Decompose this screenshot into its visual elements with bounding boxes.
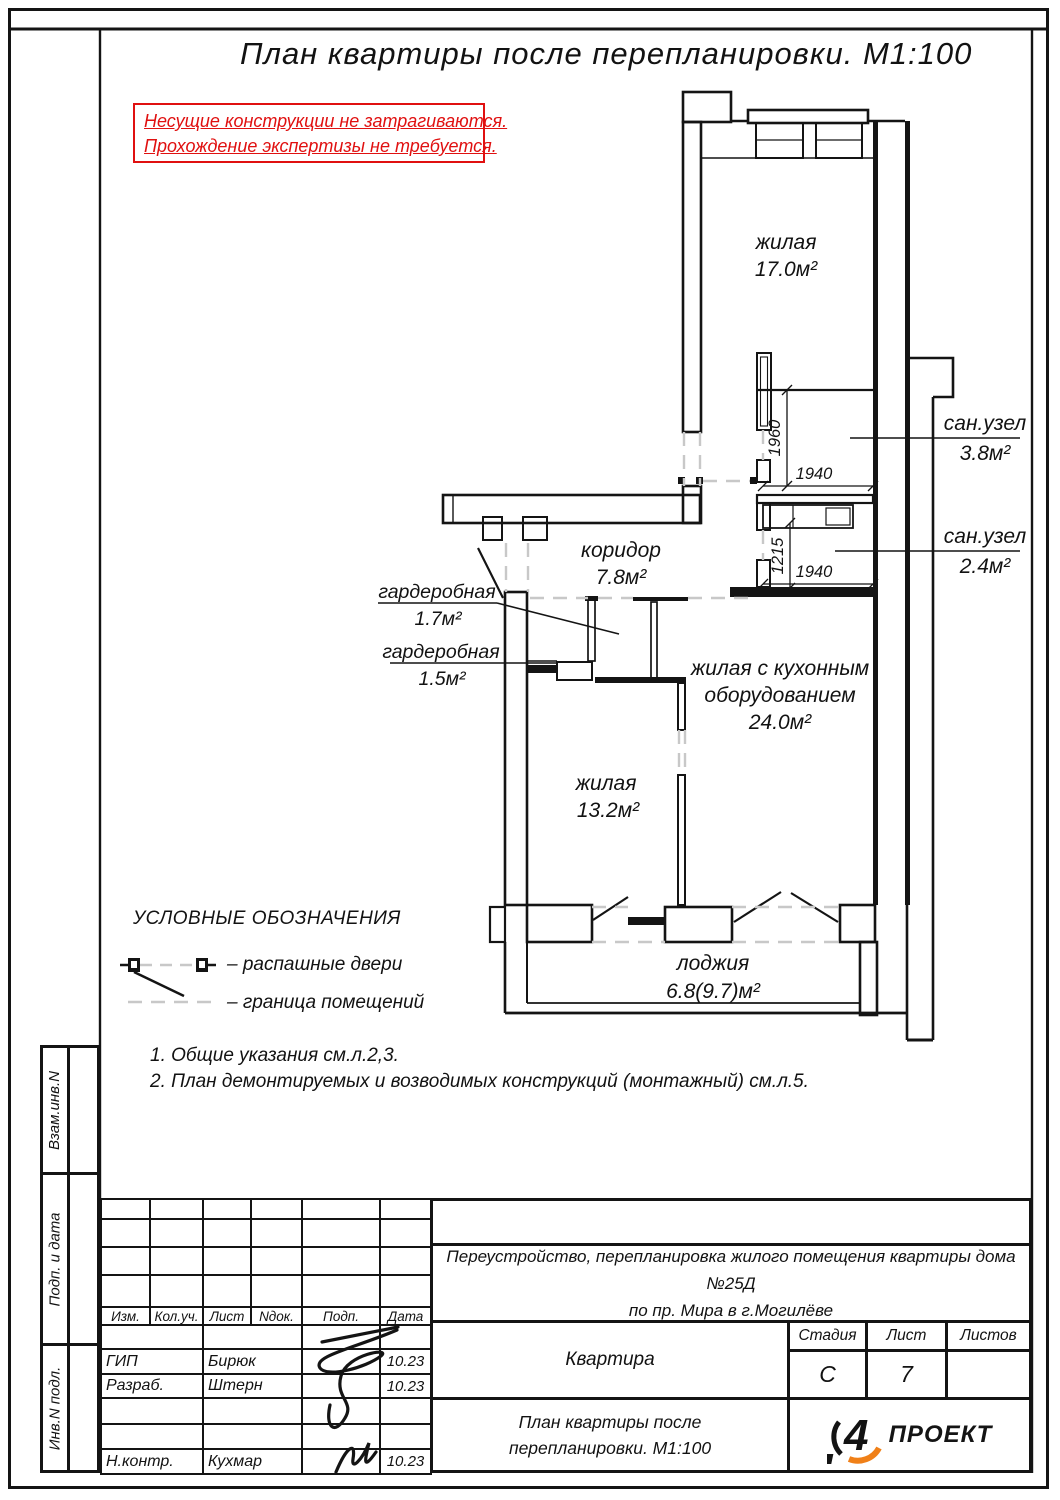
col-podp: Подп. [302,1307,380,1325]
room-gard17-name: гардеробная [378,581,496,603]
revision-table: Изм. Кол.уч. Лист Nдок. Подп. Дата ГИП Б… [100,1198,432,1475]
legend-item-swing-doors: – распашные двери [227,954,402,976]
doc-title-line-1: План квартиры после [509,1409,711,1435]
col-data: Дата [380,1307,431,1325]
col-ndok: Nдок. [251,1307,302,1325]
room-zhilaya17-name: жилая [755,231,817,254]
note-1: 1. Общие указания см.л.2,3. [150,1045,399,1067]
stage-value-cell: С [787,1349,868,1400]
left-stamp: Взам.инв.N Подп. и дата Инв.N подл. [40,1045,100,1473]
dim-1940-top: 1940 [796,465,834,483]
room-san24-name: сан.узел [944,525,1027,548]
stamp-label-inv: Инв.N подл. [47,1366,64,1450]
room-kitchen-name1: жилая с кухонным [690,657,869,680]
room-kitchen-area: 24.0м² [748,711,812,734]
stamp-cell-inv: Инв.N подл. [40,1343,100,1473]
stage-label-cell: Стадия [787,1320,868,1352]
date-nkontr: 10.23 [380,1449,431,1474]
role-gip: ГИП [101,1349,203,1374]
room-loggia-name: лоджия [676,952,749,975]
row-razrab: Разраб. Штерн 10.23 [101,1374,431,1398]
room-zhilaya13-area: 13.2м² [577,799,640,822]
drawing-sheet: План квартиры после перепланировки. М1:1… [0,0,1060,1500]
project-name-cell: Переустройство, перепланировка жилого по… [430,1243,1032,1323]
logo-glyph: 4 [843,1411,868,1460]
dim-1215: 1215 [769,537,787,575]
room-koridor-name: коридор [581,539,661,562]
role-razrab: Разраб. [101,1374,203,1398]
date-razrab: 10.23 [380,1374,431,1398]
row-gip: ГИП Бирюк 10.23 [101,1349,431,1374]
sheets-label-cell: Листов [945,1320,1032,1352]
sheets-total-cell [945,1349,1032,1400]
doc-code-cell [430,1198,1032,1246]
legend-symbols [120,958,216,1002]
room-san24-area: 2.4м² [959,555,1012,578]
leader-lines [378,438,1020,663]
company-logo-icon: 4 [827,1404,889,1466]
titleblock-right: Переустройство, перепланировка жилого по… [430,1198,1032,1473]
room-zhilaya13-name: жилая [575,772,637,795]
room-gard17-area: 1.7м² [415,608,463,630]
logo-text: ПРОЕКТ [889,1421,993,1449]
role-nkontr: Н.контр. [101,1449,203,1474]
room-gard15-name: гардеробная [382,641,500,663]
doc-title-cell: План квартиры после перепланировки. М1:1… [430,1397,790,1473]
name-nkontr: Кухмар [203,1449,302,1474]
date-gip: 10.23 [380,1349,431,1374]
sign-nkontr [302,1449,380,1474]
wardrobe-labels: гардеробная 1.7м² гардеробная 1.5м² [378,581,500,690]
room-labels: жилая 17.0м² сан.узел 3.8м² сан.узел 2.4… [575,231,1027,1003]
col-izm: Изм. [101,1307,150,1325]
dimension-labels: 1960 1940 1215 1940 [766,419,833,581]
room-san38-name: сан.узел [944,412,1027,435]
sign-gip [302,1349,380,1374]
name-gip: Бирюк [203,1349,302,1374]
col-koluch: Кол.уч. [150,1307,203,1325]
row-nkontr: Н.контр. Кухмар 10.23 [101,1449,431,1474]
stamp-label-podp: Подп. и дата [47,1212,64,1306]
name-razrab: Штерн [203,1374,302,1398]
stamp-cell-podp: Подп. и дата [40,1172,100,1346]
stamp-label-vzam: Взам.инв.N [47,1070,64,1149]
legend-item-room-boundary: – граница помещений [227,992,424,1014]
room-koridor-area: 7.8м² [596,566,648,589]
room-loggia-area: 6.8(9.7)м² [666,980,761,1003]
sheet-number-cell: 7 [865,1349,948,1400]
note-2: 2. План демонтируемых и возводимых конст… [150,1071,809,1093]
room-kitchen-name2: оборудованием [704,684,855,707]
sheet-label-cell: Лист [865,1320,948,1352]
sign-razrab [302,1374,380,1398]
logo-cell: 4 ПРОЕКТ [787,1397,1032,1473]
dim-1940-bottom: 1940 [796,563,834,581]
object-cell: Квартира [430,1320,790,1400]
dim-1960: 1960 [766,419,784,457]
doc-title-line-2: перепланировки. М1:100 [509,1435,711,1461]
room-san38-area: 3.8м² [960,442,1012,465]
swing-doors-icon [120,958,216,996]
room-gard15-area: 1.5м² [419,668,467,690]
project-line-1: Переустройство, перепланировка жилого по… [433,1243,1029,1297]
legend-title: УСЛОВНЫЕ ОБОЗНАЧЕНИЯ [133,908,401,930]
room-zhilaya17-area: 17.0м² [755,258,818,281]
stamp-cell-vzam: Взам.инв.N [40,1045,100,1175]
col-list: Лист [203,1307,251,1325]
